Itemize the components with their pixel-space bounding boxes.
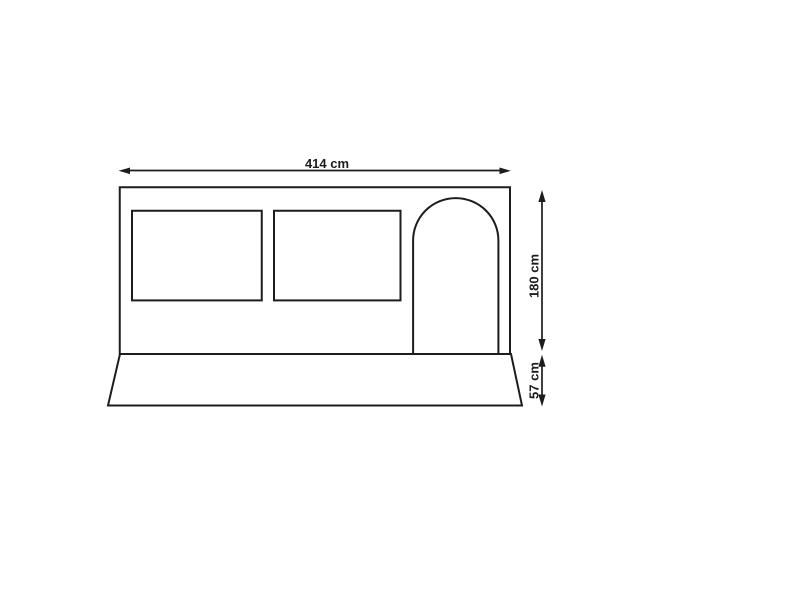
- svg-text:57 cm: 57 cm: [527, 362, 542, 399]
- svg-text:180 cm: 180 cm: [527, 254, 542, 298]
- svg-text:414 cm: 414 cm: [305, 156, 349, 171]
